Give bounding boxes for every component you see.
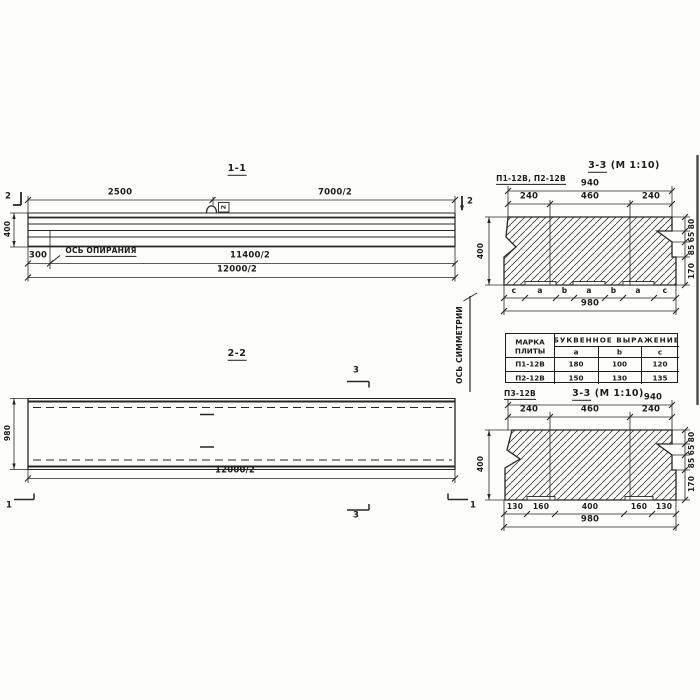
dim-130-left: 130	[507, 503, 523, 511]
letter-b-1: b	[562, 287, 568, 295]
dim-width-980: 980	[4, 425, 12, 441]
cut-mark-2-left: 2	[5, 192, 11, 201]
dim-12000-2-elevation: 12000/2	[217, 265, 257, 274]
dim-7000-2: 7000/2	[318, 188, 352, 197]
cut-mark-3-bottom: 3	[353, 511, 359, 520]
letter-a-1: a	[537, 287, 542, 295]
table-header-marka: МАРКА	[515, 338, 544, 345]
lifting-loop-icon	[207, 206, 217, 213]
section-2-2-title: 2-2	[228, 349, 247, 361]
section-3-3b-mark-label: П3-12В	[504, 390, 536, 400]
dim-height-400: 400	[4, 221, 12, 237]
dim-400-bottom: 400	[582, 503, 598, 511]
dim-80-b: 80	[688, 432, 696, 443]
table-row1-mark: П1-12В	[515, 360, 544, 367]
table-col-b: b	[617, 348, 622, 355]
blueprint-sheet: 1-1 2500 7000/2 400 2 2 2 300 ОСЬ ОПИРАН…	[0, 0, 700, 700]
letter-a-2: a	[586, 287, 591, 295]
cut-mark-3-top: 3	[353, 366, 359, 375]
section-3-3a-title-number: 3-3	[588, 160, 607, 173]
dim-940-b: 940	[644, 393, 662, 402]
dim-240-b-left: 240	[520, 405, 538, 414]
symmetry-axis-label: ОСЬ СИММЕТРИИ	[456, 306, 464, 384]
dim-11400-2: 11400/2	[230, 251, 270, 260]
dim-160-left: 160	[533, 503, 549, 511]
table-row2-b: 130	[612, 374, 627, 381]
section-3-3b-linework	[485, 400, 690, 531]
dim-300: 300	[29, 251, 47, 260]
dim-170-b: 170	[688, 476, 696, 492]
dim-170-a: 170	[688, 263, 696, 279]
section-3-3b-title-number: 3-3	[572, 388, 591, 401]
section-1-1-title: 1-1	[228, 164, 247, 176]
section-3-3a-linework	[485, 186, 690, 315]
dim-2500: 2500	[108, 188, 132, 197]
plate-marks-table: МАРКА ПЛИТЫ БУКВЕННОЕ ВЫРАЖЕНИЕ a b c П1…	[505, 333, 678, 383]
table-row2-mark: П2-12В	[515, 374, 544, 381]
dim-240-b-right: 240	[642, 405, 660, 414]
dim-240-a-left: 240	[520, 192, 538, 201]
letter-a-3: a	[635, 287, 640, 295]
dim-12000-2-plan: 12000/2	[215, 466, 255, 475]
dim-160-right: 160	[631, 503, 647, 511]
table-col-a: a	[574, 348, 579, 355]
dim-130-right: 130	[656, 503, 672, 511]
letter-c-1: c	[512, 287, 517, 295]
section-3-3b-scale: (М 1:10)	[595, 388, 644, 399]
dim-65-b: 65	[688, 444, 696, 455]
table-row1-a: 180	[568, 360, 583, 367]
dim-980-b: 980	[581, 515, 599, 524]
section-2-2-linework	[10, 382, 468, 511]
table-header-plity: ПЛИТЫ	[515, 347, 545, 354]
cut-mark-1-left: 1	[6, 501, 12, 510]
dim-400-b: 400	[477, 456, 485, 472]
table-header-group: БУКВЕННОЕ ВЫРАЖЕНИЕ	[553, 336, 679, 343]
symmetry-axis-linework	[464, 293, 478, 392]
section-3-3a-scale: (М 1:10)	[611, 160, 660, 171]
cut-mark-1-right: 1	[470, 501, 476, 510]
letter-b-2: b	[611, 287, 617, 295]
dim-85-b: 85	[688, 457, 696, 468]
dim-460-b: 460	[581, 405, 599, 414]
table-row2-c: 135	[652, 374, 667, 381]
dim-980-a: 980	[581, 299, 599, 308]
table-row1-c: 120	[652, 360, 667, 367]
lifting-loop-tag: 2	[220, 205, 227, 210]
dim-460-a: 460	[581, 192, 599, 201]
dim-240-a-right: 240	[642, 192, 660, 201]
letter-c-2: c	[663, 287, 668, 295]
dim-400-a: 400	[477, 243, 485, 259]
dim-65-a: 65	[688, 231, 696, 242]
table-col-c: c	[658, 348, 662, 355]
table-row1-b: 100	[612, 360, 627, 367]
table-row2-a: 150	[568, 374, 583, 381]
dim-940-a: 940	[581, 179, 599, 188]
bearing-axis-label: ОСЬ ОПИРАНИЯ	[65, 247, 136, 257]
cut-mark-2-right: 2	[467, 197, 473, 206]
dim-80-a: 80	[688, 219, 696, 230]
section-3-3a-title: 3-3(М 1:10)	[588, 161, 660, 171]
dim-85-a: 85	[688, 244, 696, 255]
section-3-3a-mark-label: П1-12В, П2-12В	[496, 175, 566, 185]
section-3-3b-title: 3-3(М 1:10)	[572, 389, 644, 399]
